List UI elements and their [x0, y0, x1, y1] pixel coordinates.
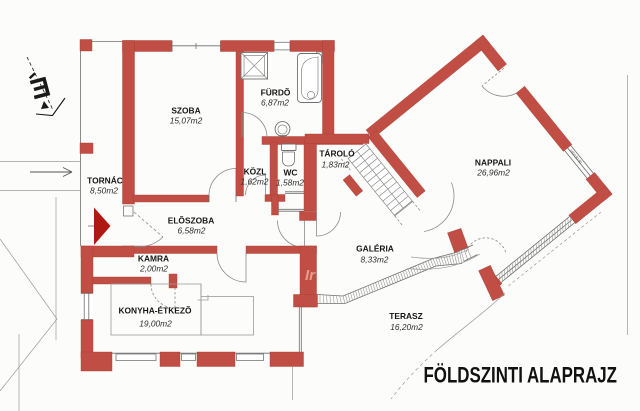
svg-text:GALÉRIA: GALÉRIA: [356, 243, 394, 254]
svg-text:1,62m2: 1,62m2: [241, 177, 269, 187]
svg-text:SZOBA: SZOBA: [171, 106, 200, 116]
svg-text:1,83m2: 1,83m2: [322, 160, 350, 170]
svg-text:ELÕSZOBA: ELÕSZOBA: [168, 216, 215, 226]
svg-text:KÖZL: KÖZL: [244, 167, 267, 177]
svg-text:KAMRA: KAMRA: [138, 254, 169, 264]
svg-text:TÁROLÓ: TÁROLÓ: [319, 148, 355, 159]
svg-text:FÖLDSZINTI ALAPRAJZ: FÖLDSZINTI ALAPRAJZ: [424, 363, 618, 388]
svg-text:6,58m2: 6,58m2: [178, 226, 206, 236]
svg-text:KONYHA-ÉTKEZÕ: KONYHA-ÉTKEZÕ: [118, 305, 192, 316]
svg-text:FÜRDÕ: FÜRDÕ: [261, 88, 291, 98]
svg-text:2,00m2: 2,00m2: [139, 264, 168, 274]
svg-text:19,00m2: 19,00m2: [139, 319, 172, 329]
svg-text:8,50m2: 8,50m2: [90, 186, 118, 196]
svg-text:6,87m2: 6,87m2: [261, 98, 289, 108]
svg-text:NAPPALI: NAPPALI: [475, 158, 511, 168]
svg-text:8,33m2: 8,33m2: [361, 255, 389, 265]
svg-text:WC: WC: [284, 168, 298, 178]
svg-text:Ir: Ir: [305, 267, 316, 284]
svg-text:26,96m2: 26,96m2: [476, 168, 510, 178]
svg-text:1,58m2: 1,58m2: [276, 178, 304, 188]
svg-text:TERASZ: TERASZ: [389, 311, 423, 321]
svg-text:TORNÁC: TORNÁC: [87, 175, 123, 186]
svg-text:15,07m2: 15,07m2: [170, 116, 203, 126]
svg-text:16,20m2: 16,20m2: [390, 322, 423, 332]
